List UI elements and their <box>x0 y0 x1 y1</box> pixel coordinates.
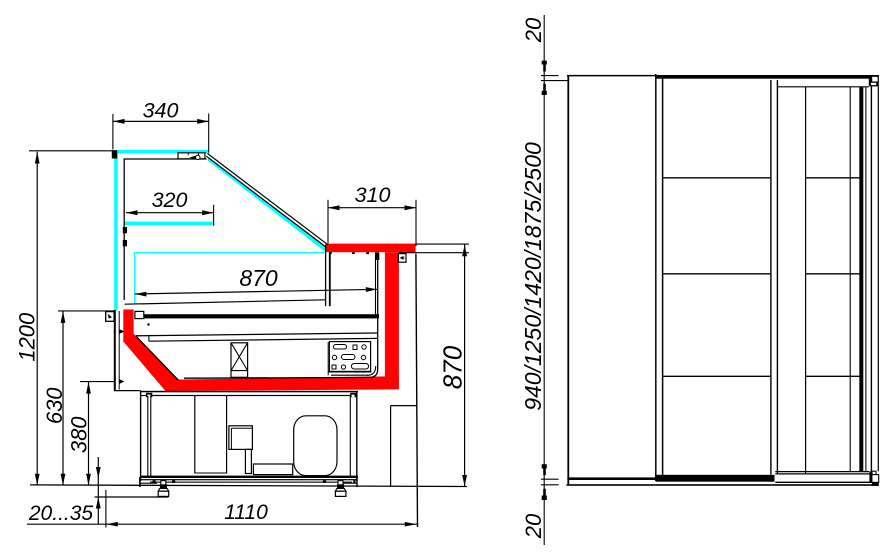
svg-text:1110: 1110 <box>224 501 268 524</box>
svg-text:20: 20 <box>521 17 546 43</box>
svg-text:20: 20 <box>521 513 546 539</box>
svg-text:380: 380 <box>66 416 91 453</box>
svg-text:1200: 1200 <box>15 312 40 362</box>
svg-text:320: 320 <box>152 188 188 212</box>
svg-text:340: 340 <box>143 99 179 123</box>
svg-text:940/1250/1420/1875/2500: 940/1250/1420/1875/2500 <box>520 142 546 411</box>
svg-text:870: 870 <box>239 265 278 291</box>
svg-text:20...35: 20...35 <box>28 502 94 525</box>
svg-text:870: 870 <box>438 345 468 389</box>
svg-text:630: 630 <box>42 387 67 424</box>
svg-text:310: 310 <box>355 183 391 207</box>
